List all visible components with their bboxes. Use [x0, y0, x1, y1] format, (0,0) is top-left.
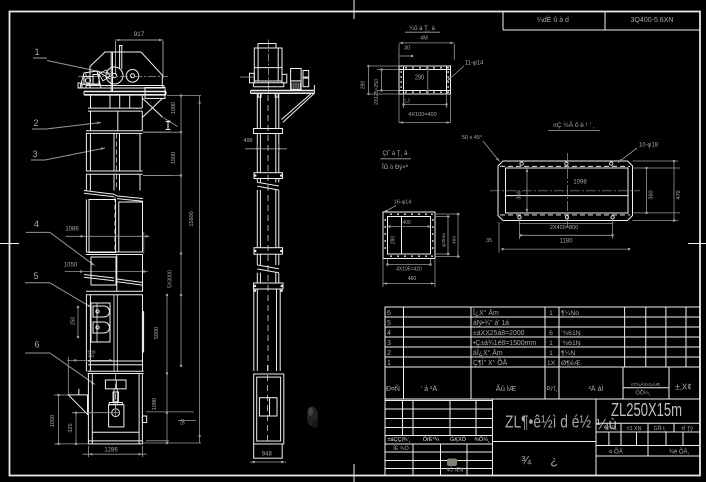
- svg-text:16-φ14: 16-φ14: [394, 200, 412, 206]
- svg-text:Ĭ¿X° Ām: Ĭ¿X° Ām: [472, 308, 499, 317]
- svg-text:2X125=250: 2X125=250: [374, 79, 380, 105]
- svg-text:¾: ¾: [521, 454, 532, 468]
- svg-text:±áÇÇ|¾’¸: ±áÇÇ|¾’¸: [387, 437, 410, 443]
- svg-text:1050: 1050: [50, 415, 56, 427]
- svg-text:498: 498: [243, 138, 252, 144]
- svg-text:15600: 15600: [189, 211, 195, 226]
- svg-text:360: 360: [649, 190, 655, 199]
- svg-text:¿: ¿: [550, 454, 557, 468]
- svg-text:3: 3: [32, 149, 37, 159]
- svg-text:±1 XŅ: ±1 XŅ: [627, 426, 642, 432]
- svg-text:ĠĶXŐ: ĠĶXŐ: [450, 436, 467, 443]
- svg-text:1: 1: [34, 47, 39, 57]
- svg-text:ÔÕ¼¸: ÔÕ¼¸: [636, 390, 651, 397]
- svg-text:400: 400: [402, 220, 411, 226]
- svg-text:2: 2: [387, 350, 391, 357]
- svg-text:1286: 1286: [104, 448, 118, 454]
- svg-text:290: 290: [361, 81, 367, 90]
- svg-text:4: 4: [34, 219, 39, 229]
- svg-text:4Ő ÆŅ: 4Ő ÆŅ: [447, 467, 464, 474]
- svg-text:ĬÈ ¾Ő: ĬÈ ¾Ő: [392, 445, 409, 452]
- svg-text:Ç¶Ì" X° ÕÅ: Ç¶Ì" X° ÕÅ: [473, 358, 508, 367]
- svg-text:30: 30: [404, 46, 410, 52]
- svg-text:ĐýŢ¸: ĐýŢ¸: [547, 386, 558, 392]
- svg-text:470: 470: [676, 190, 682, 199]
- svg-text:1080: 1080: [152, 398, 158, 410]
- svg-text:1098: 1098: [573, 180, 587, 186]
- svg-text:¶¼Ņò: ¶¼Ņò: [561, 310, 579, 317]
- svg-text:1180: 1180: [560, 239, 574, 245]
- svg-text:5: 5: [387, 320, 391, 327]
- svg-text:50 x 45°: 50 x 45°: [462, 135, 482, 141]
- svg-text:1: 1: [387, 360, 391, 367]
- svg-text:¤Ç ½Ã õ è ¹ ’ ¸: ¤Ç ½Ã õ è ¹ ’ ¸: [553, 120, 595, 129]
- svg-text:460: 460: [452, 236, 458, 244]
- svg-text:10-φ18: 10-φ18: [639, 143, 659, 149]
- svg-text:’¾61Ņ: ’¾61Ņ: [561, 330, 581, 337]
- svg-text:2X400=800: 2X400=800: [550, 225, 578, 231]
- svg-text:¾é ÕÅ,: ¾é ÕÅ,: [669, 449, 690, 456]
- svg-text:11-φ14: 11-φ14: [465, 61, 484, 67]
- svg-text:1: 1: [549, 340, 553, 347]
- svg-text:¾Ő¼¸: ¾Ő¼¸: [474, 436, 489, 443]
- svg-text:±áXX25á8=2000: ±áXX25á8=2000: [473, 330, 525, 337]
- svg-text:²Ä áÌ: ²Ä áÌ: [589, 384, 604, 393]
- svg-text:1080: 1080: [171, 102, 177, 114]
- svg-text:460: 460: [408, 276, 417, 282]
- svg-text:4M: 4M: [88, 353, 94, 358]
- svg-text:ĠÑ ŧ¸: ĠÑ ŧ¸: [654, 425, 667, 432]
- svg-text:1: 1: [549, 310, 553, 317]
- svg-text:250: 250: [71, 317, 77, 326]
- svg-text:917: 917: [134, 31, 145, 38]
- svg-text:’ á ²Ä: ’ á ²Ä: [421, 385, 437, 393]
- svg-text:±,X¢: ±,X¢: [675, 383, 691, 392]
- svg-text:áŅ•¾" á’ 1á: áŅ•¾" á’ 1á: [473, 320, 509, 327]
- svg-text:•Ç±á¾1é8=1500mm: •Ç±á¾1é8=1500mm: [473, 340, 536, 347]
- svg-text:3: 3: [387, 340, 391, 347]
- svg-text:ZL250X15m: ZL250X15m: [611, 399, 682, 420]
- svg-text:325: 325: [68, 423, 74, 432]
- svg-text:290: 290: [391, 236, 397, 245]
- svg-text:4M: 4M: [420, 36, 428, 42]
- svg-text:¤T½ÄX¤1ÄÆ: ¤T½ÄX¤1ÄÆ: [631, 381, 661, 388]
- svg-text:ZL¶•ê½ì d é½: ZL¶•ê½ì d é½: [505, 412, 591, 432]
- svg-text:6: 6: [387, 310, 391, 317]
- svg-text:áĬ¿X° Ām: áĬ¿X° Ām: [473, 348, 503, 357]
- svg-text:4X100=400: 4X100=400: [408, 112, 436, 118]
- svg-text:1: 1: [549, 350, 553, 357]
- svg-text:5: 5: [33, 271, 38, 281]
- svg-text:1500: 1500: [171, 152, 177, 164]
- svg-text:3Q400-5.6XN: 3Q400-5.6XN: [631, 17, 674, 24]
- svg-text:50: 50: [181, 419, 187, 425]
- svg-text:¼õ á Ţ¸ á: ¼õ á Ţ¸ á: [409, 26, 435, 32]
- svg-text:6: 6: [549, 330, 553, 337]
- svg-text:4: 4: [387, 330, 391, 337]
- svg-text:5X3000: 5X3000: [168, 270, 174, 288]
- svg-text:6: 6: [34, 340, 39, 350]
- svg-text:4X105=420: 4X105=420: [396, 267, 422, 273]
- svg-text:Ãû łÆ: Ãû łÆ: [496, 384, 517, 393]
- svg-text:¶¼Ņ: ¶¼Ņ: [561, 350, 575, 357]
- svg-text:948: 948: [262, 451, 273, 457]
- svg-text:1086: 1086: [65, 227, 79, 233]
- svg-text:1X: 1X: [547, 360, 556, 367]
- svg-text:ŐŕÉ°¼: ŐŕÉ°¼: [423, 436, 440, 443]
- svg-text:¤ ÕÅ: ¤ ÕÅ: [609, 449, 623, 456]
- svg-text:Ø¶éÆ·: Ø¶éÆ·: [561, 360, 583, 367]
- svg-text:φ254±: φ254±: [441, 233, 447, 247]
- svg-text:ĬÈ ÑL: ĬÈ ÑL: [603, 425, 617, 432]
- svg-text:290: 290: [415, 75, 424, 82]
- svg-text:¼dÈ û à d: ¼dÈ û à d: [537, 15, 569, 24]
- svg-text:5000: 5000: [154, 327, 160, 339]
- svg-text:’¾61Ņ: ’¾61Ņ: [561, 340, 581, 347]
- svg-text:Đ¤Ň: Đ¤Ň: [386, 384, 400, 393]
- svg-text:ÇΓ á Ţ¸ â: ÇΓ á Ţ¸ â: [383, 151, 409, 157]
- svg-text:2: 2: [33, 118, 38, 128]
- svg-text:±Ĭ Ţŷ: ±Ĭ Ţŷ: [681, 425, 693, 432]
- svg-text:ÎÒ ò Đý×ª: ÎÒ ò Đý×ª: [381, 164, 409, 171]
- svg-text:1050: 1050: [64, 263, 78, 269]
- svg-text:360: 360: [517, 190, 523, 199]
- svg-text:35: 35: [486, 238, 492, 244]
- svg-text:LJ: LJ: [404, 99, 410, 105]
